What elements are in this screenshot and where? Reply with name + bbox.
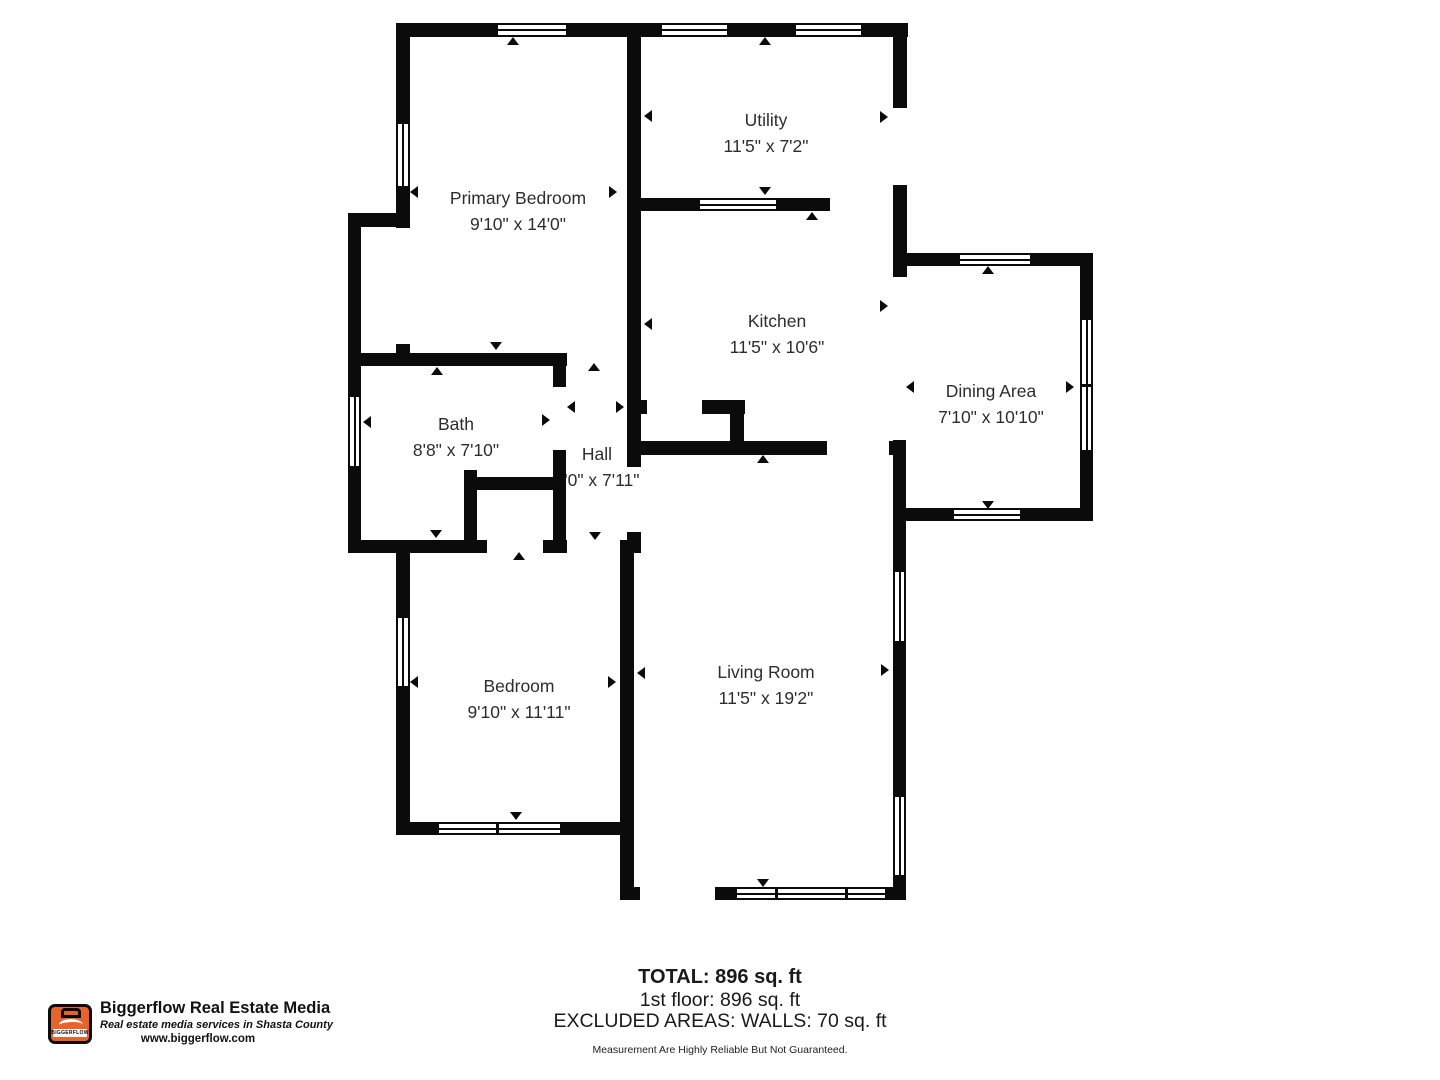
window: [893, 795, 906, 877]
room-label-dining-area: Dining Area 7'10" x 10'10": [938, 378, 1044, 430]
wall: [464, 470, 477, 553]
wall: [348, 213, 361, 553]
logo-text-block: Biggerflow Real Estate Media Real estate…: [100, 998, 360, 1047]
measure-arrow-right-icon: [542, 414, 550, 426]
wall: [464, 477, 565, 490]
measure-arrow-up-icon: [588, 363, 600, 371]
room-label-living-room: Living Room 11'5" x 19'2": [717, 659, 814, 711]
measure-arrow-right-icon: [609, 186, 617, 198]
measure-arrow-right-icon: [881, 664, 889, 676]
measure-arrow-down-icon: [759, 187, 771, 195]
window-mullion: [1080, 384, 1093, 387]
wall: [778, 198, 830, 211]
measure-arrow-down-icon: [490, 342, 502, 350]
wall: [620, 540, 634, 900]
total-area-text: TOTAL: 896 sq. ft: [0, 966, 1440, 989]
room-name: Bath: [413, 411, 499, 437]
measure-arrow-left-icon: [410, 186, 418, 198]
window: [735, 887, 887, 900]
measure-arrow-left-icon: [644, 318, 652, 330]
measure-arrow-up-icon: [431, 367, 443, 375]
window: [794, 23, 863, 37]
room-name: Dining Area: [938, 378, 1044, 404]
room-label-bedroom: Bedroom 9'10" x 11'11": [467, 673, 570, 725]
camera-logo-text: BIGGERFLOW: [53, 1029, 87, 1037]
room-dims: 11'5" x 19'2": [717, 685, 814, 711]
window: [396, 122, 410, 188]
window: [660, 23, 729, 37]
company-name: Biggerflow Real Estate Media: [100, 998, 360, 1018]
wall: [553, 450, 566, 553]
room-name: Primary Bedroom: [450, 185, 586, 211]
room-dims: 9'10" x 14'0": [450, 211, 586, 237]
measure-arrow-up-icon: [806, 212, 818, 220]
window: [698, 198, 778, 211]
wall: [640, 198, 698, 211]
window-mullion: [845, 887, 848, 900]
measure-arrow-right-icon: [880, 111, 888, 123]
measure-arrow-down-icon: [757, 879, 769, 887]
room-name: Kitchen: [730, 308, 825, 334]
wall: [640, 400, 647, 414]
room-name: Living Room: [717, 659, 814, 685]
room-label-bath: Bath 8'8" x 7'10": [413, 411, 499, 463]
wall: [893, 23, 907, 108]
measure-arrow-down-icon: [430, 530, 442, 538]
wall: [627, 23, 641, 467]
measure-arrow-left-icon: [906, 381, 914, 393]
measure-arrow-up-icon: [507, 37, 519, 45]
room-dims: 7'10" x 10'10": [938, 404, 1044, 430]
measure-arrow-right-icon: [1066, 381, 1074, 393]
wall: [730, 414, 744, 441]
room-name: Bedroom: [467, 673, 570, 699]
room-label-utility: Utility 11'5" x 7'2": [724, 107, 809, 159]
wall: [630, 441, 827, 455]
room-dims: 11'5" x 7'2": [724, 133, 809, 159]
measure-arrow-right-icon: [616, 401, 624, 413]
window: [496, 23, 568, 37]
company-tagline: Real estate media services in Shasta Cou…: [100, 1018, 360, 1032]
room-name: Utility: [724, 107, 809, 133]
measure-arrow-up-icon: [982, 266, 994, 274]
window-mullion: [496, 822, 499, 835]
window: [893, 570, 906, 643]
measure-arrow-down-icon: [589, 532, 601, 540]
room-dims: 3'0" x 7'11": [555, 467, 640, 493]
camera-bump: [61, 1008, 81, 1018]
measure-arrow-right-icon: [608, 676, 616, 688]
window: [958, 253, 1032, 266]
measure-arrow-up-icon: [513, 552, 525, 560]
measure-arrow-left-icon: [644, 110, 652, 122]
measure-arrow-down-icon: [510, 812, 522, 820]
room-dims: 9'10" x 11'11": [467, 699, 570, 725]
measure-arrow-left-icon: [567, 401, 575, 413]
camera-logo-icon: BIGGERFLOW: [48, 1004, 92, 1044]
room-label-primary-bedroom: Primary Bedroom 9'10" x 14'0": [450, 185, 586, 237]
measure-arrow-left-icon: [363, 416, 371, 428]
measure-arrow-left-icon: [637, 667, 645, 679]
wall: [702, 400, 745, 414]
measure-arrow-down-icon: [982, 501, 994, 509]
window: [348, 395, 361, 468]
room-dims: 11'5" x 10'6": [730, 334, 825, 360]
measure-arrow-up-icon: [759, 37, 771, 45]
company-website: www.biggerflow.com: [100, 1032, 296, 1047]
floor-plan: Primary Bedroom 9'10" x 14'0" Utility 11…: [0, 0, 1440, 1080]
measure-arrow-up-icon: [757, 455, 769, 463]
room-dims: 8'8" x 7'10": [413, 437, 499, 463]
measure-arrow-left-icon: [410, 676, 418, 688]
window: [952, 508, 1022, 521]
window-mullion: [775, 887, 778, 900]
room-label-kitchen: Kitchen 11'5" x 10'6": [730, 308, 825, 360]
measure-arrow-right-icon: [880, 300, 888, 312]
window: [437, 822, 562, 835]
wall: [348, 353, 567, 366]
wall: [396, 344, 410, 366]
wall: [553, 353, 566, 387]
wall: [893, 185, 907, 277]
window: [396, 616, 410, 688]
